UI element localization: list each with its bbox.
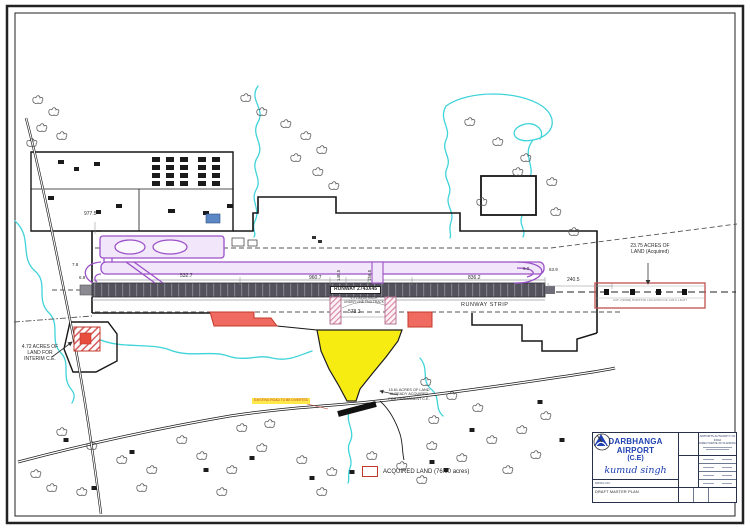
link-taxi-note-line2: UNDER LINE TAXI TRACK [338,301,390,305]
dim-836-2: 836.2 [468,276,481,282]
dim-156-5: 156.5 [367,270,372,281]
runway-label: RUNWAY 2743X45 [330,286,381,294]
dim-63-9: 63.9 [549,267,558,272]
revision-rows [699,456,736,487]
legend-acquired-label: ACQUIRED LAND (76.00 acres) [383,469,469,475]
drawing-title: DRAFT MASTER PLAN [593,487,678,502]
north-circle [679,456,699,487]
legend-acquired-swatch [362,466,378,477]
permanent-line3: FOR PERMANENT C.E. [380,397,438,401]
dim-7-8: 7.8 [72,262,78,267]
runway-strip-label: RUNWAY STRIP [461,302,508,308]
approach-note: CAT-I (900M) PORTION LOCATION OF CAT-II … [598,299,702,303]
blue-building [206,214,220,223]
org-fineprint-bar2 [706,449,728,450]
dim-578-3: 578.3 [348,310,361,316]
interim-land-label: 4.72 ACRES OF LAND FOR INTERIM C.E. [16,345,64,362]
acquired-right-label: 23.75 ACRES OF LAND (Acquired) [612,244,688,256]
dim-6-9: 6.9 [79,275,85,280]
dim-6-0: 6.0 [523,266,529,271]
dim-977-5: 977.5 [84,212,97,218]
signature: kumud singh [593,465,678,476]
title-block-right: AIRPORTS AUTHORITY OF INDIA DIRECTORATE … [679,433,736,502]
interim-line3: INTERIM C.E. [16,357,64,363]
org-line1: AIRPORTS AUTHORITY OF INDIA [699,434,736,442]
link-taxi-note: 4 x 150(55) EACH UNDER LINE TAXI TRACK [338,297,390,305]
legend: ACQUIRED LAND (76.00 acres) [362,466,469,477]
drawing-number-cells [679,487,736,502]
org-fineprint-bar [703,447,732,448]
dim-240-5: 240.5 [567,278,580,284]
dim-140-5: 140.5 [336,270,341,281]
dim-532-7: 532.7 [180,274,193,280]
aai-logo [679,433,698,455]
dim-960-7: 960.7 [309,276,322,282]
org-box: AIRPORTS AUTHORITY OF INDIA DIRECTORATE … [698,433,736,455]
drwg-no-label: DRWG NO. [593,479,678,487]
airport-sub: (C.E) [593,455,678,462]
org-line2: DIRECTORATE OF PLANNING [699,442,736,445]
drawing-sheet: 977.5 7.8 6.9 532.7 960.7 140.5 156.5 83… [0,0,750,530]
acquired-right-line2: LAND (Acquired) [612,250,688,256]
permanent-land-label: 15.61 ACRES OF LAND ALREADY ACQUIRED FOR… [380,388,438,401]
road-note: EXISTING ROAD TO BE DIVERTED [252,398,310,404]
title-block: DARBHANGA AIRPORT (C.E) kumud singh DRWG… [592,432,737,503]
